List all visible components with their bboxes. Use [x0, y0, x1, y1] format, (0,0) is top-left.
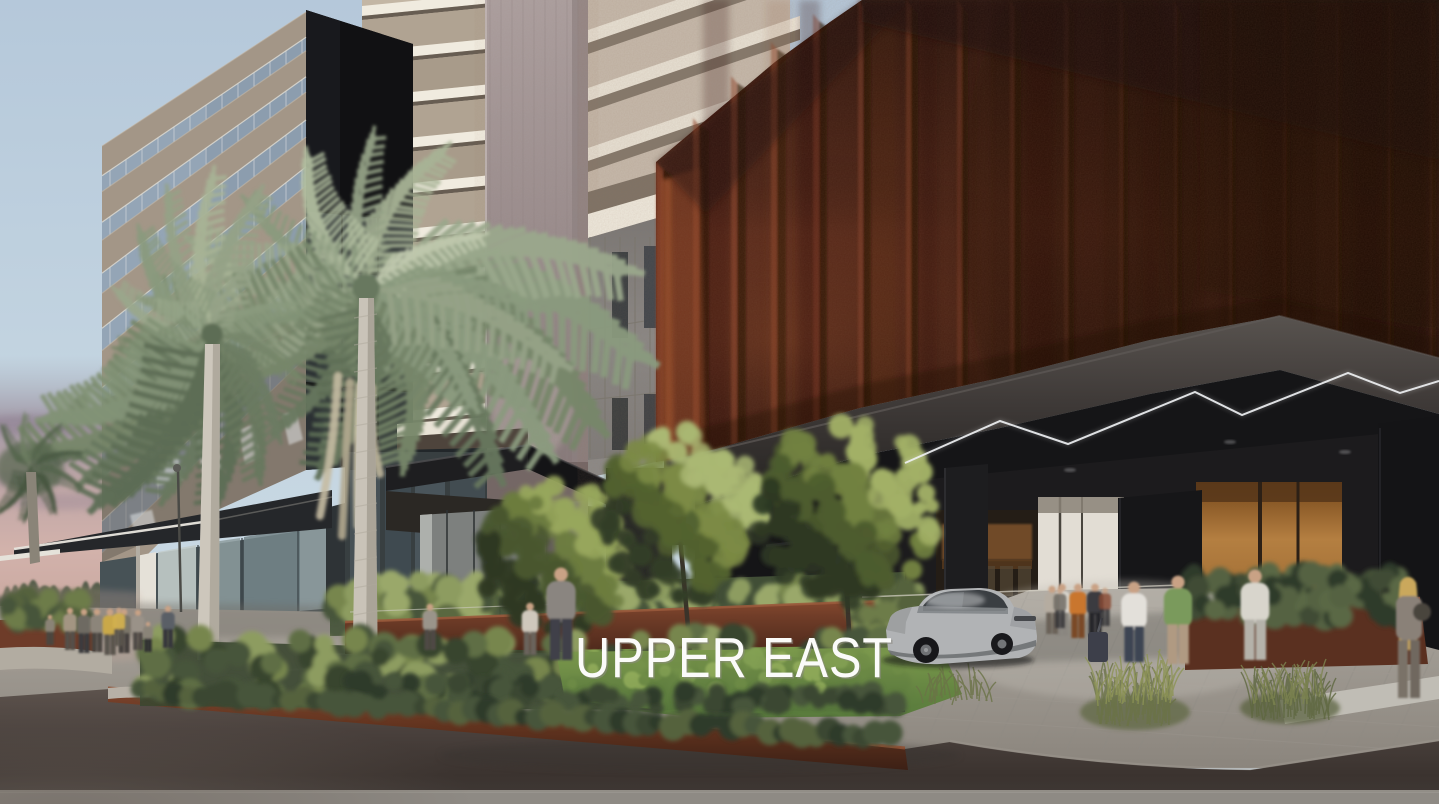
- svg-text:UPPER EAST: UPPER EAST: [575, 626, 893, 690]
